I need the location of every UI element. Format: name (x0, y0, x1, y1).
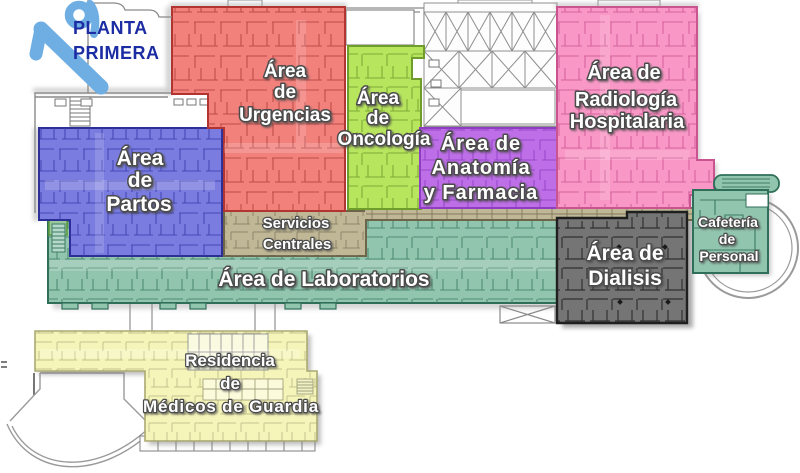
svg-text:de: de (367, 108, 389, 129)
svg-text:Área: Área (357, 87, 400, 109)
svg-text:Área de: Área de (441, 132, 521, 155)
svg-text:Área: Área (117, 147, 164, 170)
svg-text:Radiología: Radiología (575, 89, 678, 111)
svg-text:PLANTA: PLANTA (73, 18, 148, 38)
svg-text:Servicios: Servicios (263, 215, 330, 232)
svg-text:Anatomía: Anatomía (431, 157, 530, 179)
svg-text:Partos: Partos (106, 193, 171, 216)
svg-text:Hospitalaria: Hospitalaria (570, 111, 685, 133)
svg-text:Médicos de Guardia: Médicos de Guardia (143, 397, 319, 416)
svg-text:de: de (274, 82, 296, 103)
svg-text:Residencia: Residencia (185, 351, 275, 370)
svg-text:Área de: Área de (586, 242, 663, 265)
svg-text:PRIMERA: PRIMERA (73, 43, 160, 63)
svg-text:y Farmacia: y Farmacia (424, 182, 539, 204)
svg-text:Cafetería: Cafetería (698, 214, 758, 230)
svg-text:Área de: Área de (587, 61, 660, 84)
svg-text:Centrales: Centrales (263, 236, 331, 253)
svg-text:Urgencias: Urgencias (239, 105, 331, 126)
svg-text:de: de (220, 374, 240, 393)
svg-text:Área de Laboratorios: Área de Laboratorios (218, 268, 429, 291)
svg-text:Personal: Personal (699, 248, 758, 264)
svg-text:de: de (128, 169, 153, 192)
svg-text:Oncología: Oncología (338, 129, 431, 150)
svg-text:de: de (719, 231, 736, 247)
svg-text:Área: Área (264, 60, 307, 82)
svg-text:Dialisis: Dialisis (588, 267, 662, 290)
